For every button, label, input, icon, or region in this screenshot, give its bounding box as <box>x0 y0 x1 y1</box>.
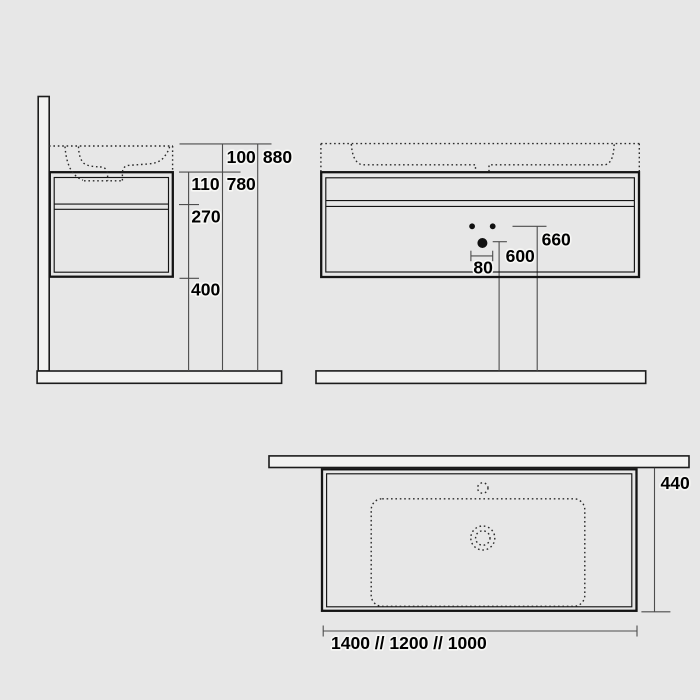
svg-text:440: 440 <box>661 473 690 493</box>
svg-text:400: 400 <box>191 279 220 299</box>
svg-text:1400 // 1200 // 1000: 1400 // 1200 // 1000 <box>331 633 487 653</box>
svg-text:80: 80 <box>473 258 493 278</box>
svg-text:660: 660 <box>542 229 571 249</box>
svg-text:880: 880 <box>263 147 292 167</box>
svg-text:270: 270 <box>191 206 220 226</box>
svg-text:780: 780 <box>227 174 256 194</box>
svg-text:100: 100 <box>227 147 256 167</box>
svg-text:600: 600 <box>506 246 535 266</box>
svg-text:110: 110 <box>191 174 219 194</box>
